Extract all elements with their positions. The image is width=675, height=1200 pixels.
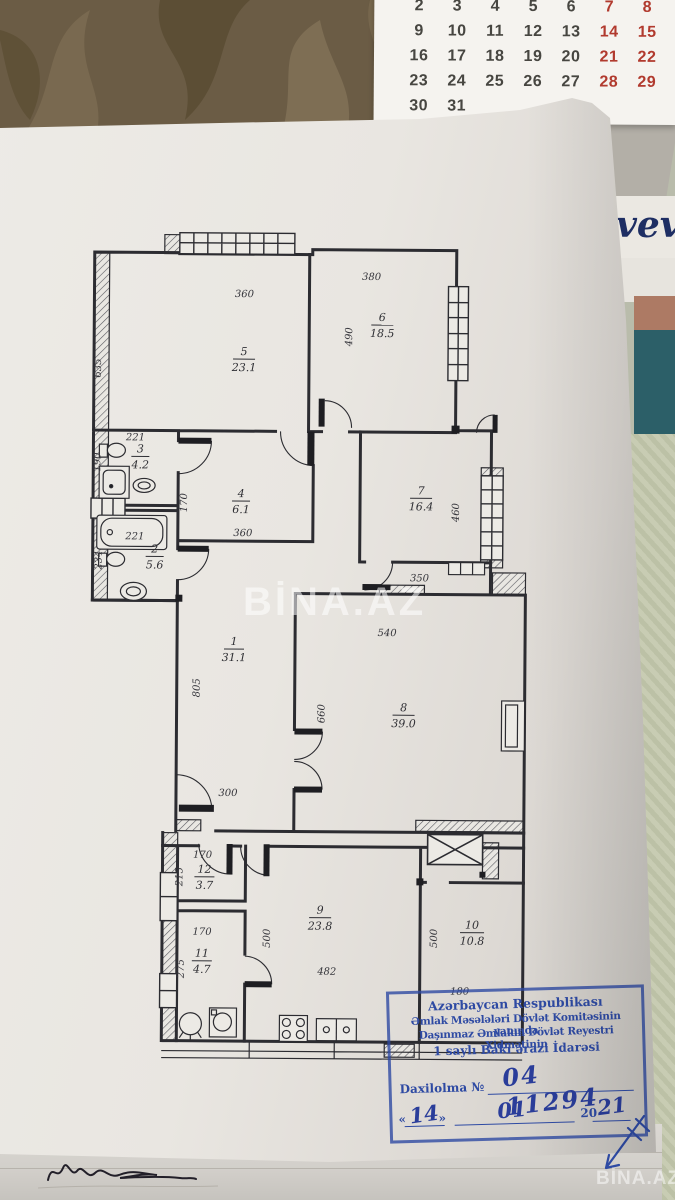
svg-text:9: 9	[317, 904, 324, 917]
calendar-day: 7	[590, 0, 628, 17]
calendar-day: 16	[400, 47, 438, 65]
calendar-day: 28	[590, 73, 628, 91]
stamp-day-line	[405, 1125, 445, 1127]
dim-label: 490	[344, 327, 355, 348]
calendar-day: 19	[514, 48, 552, 66]
curtain-pattern	[0, 0, 420, 140]
room-label: 523.1	[231, 345, 257, 374]
calendar-day: 24	[438, 72, 476, 90]
svg-text:3: 3	[137, 442, 144, 455]
dim-label: 221	[124, 531, 144, 542]
svg-text:18.5: 18.5	[370, 327, 395, 340]
stamp-day-handwritten: 14	[408, 1100, 440, 1129]
curtain-fabric	[0, 0, 420, 140]
dim-label: 170	[193, 850, 213, 861]
watermark-center: BİNA.AZ	[243, 580, 426, 625]
room-label: 123.7	[194, 863, 214, 892]
watermark-corner: BİNA.AZ	[596, 1168, 675, 1190]
svg-text:31.1: 31.1	[222, 651, 247, 664]
calendar-day: 18	[476, 48, 514, 66]
room-label: 618.5	[370, 311, 395, 340]
calendar-day: 8	[628, 0, 666, 17]
calendar-day: 25	[476, 73, 514, 91]
stamp-quote-close: »	[438, 1111, 446, 1125]
svg-text:1: 1	[231, 635, 238, 648]
floor-plan: 131.1 25.6 34.2 46.1 523.1 618.5 716.4 8…	[79, 220, 550, 1063]
box-logo-text: vev	[616, 204, 675, 246]
calendar-day: 30	[400, 97, 438, 115]
dim-label: 360	[233, 528, 253, 539]
dim-label: 221	[125, 432, 145, 443]
calendar-day: 31	[438, 97, 476, 115]
calendar-day: 6	[552, 0, 590, 16]
elevator-shaft	[428, 834, 483, 864]
handwritten-signature	[38, 1148, 218, 1196]
svg-text:10.8: 10.8	[460, 935, 485, 948]
room-label: 1010.8	[460, 919, 485, 948]
dim-label: 234	[94, 551, 105, 571]
calendar-day: 21	[590, 48, 628, 66]
dim-label: 380	[362, 272, 382, 283]
svg-text:39.0: 39.0	[391, 717, 416, 730]
svg-text:6: 6	[379, 311, 386, 324]
calendar-day: 14	[590, 23, 628, 41]
dim-label: 500	[429, 928, 440, 948]
svg-text:16.4: 16.4	[409, 500, 434, 513]
room-label: 131.1	[222, 635, 247, 664]
stamp-month-handwritten: 01	[496, 1096, 528, 1124]
background-strip-teal	[634, 330, 675, 438]
dim-label: 275	[176, 959, 187, 979]
svg-text:2: 2	[150, 542, 158, 555]
calendar-day: 26	[514, 73, 552, 91]
calendar-day: 9	[400, 22, 438, 40]
dim-label: 190	[92, 452, 103, 472]
dim-label: 660	[316, 703, 327, 723]
calendar-day: 11	[476, 23, 514, 41]
stamp-quote-open: «	[398, 1112, 406, 1126]
photo-of-floor-plan-document: vev 2 3 4 5 6 7 8 9 10 11 12 13 14 15 16…	[0, 0, 675, 1200]
svg-text:3.7: 3.7	[196, 879, 214, 892]
room-label: 114.7	[192, 947, 212, 976]
calendar-day: 23	[400, 72, 438, 90]
dim-label: 805	[192, 678, 203, 697]
svg-text:6.1: 6.1	[232, 503, 250, 516]
dim-label: 170	[179, 492, 190, 512]
background-strip-brown	[634, 296, 675, 334]
stamp-month-line	[455, 1121, 575, 1125]
dim-label: 215	[174, 867, 185, 887]
calendar-day: 29	[628, 74, 666, 92]
dim-label: 170	[192, 927, 212, 938]
calendar-day: 4	[476, 0, 514, 16]
svg-text:8: 8	[400, 701, 407, 714]
room-label: 716.4	[409, 484, 434, 513]
svg-text:7: 7	[418, 484, 425, 497]
calendar-day: 2	[400, 0, 438, 15]
calendar-day: 17	[438, 47, 476, 65]
room-label: 923.8	[307, 904, 333, 933]
door-arcs	[175, 400, 495, 986]
calendar-day: 10	[438, 22, 476, 40]
calendar-day: 5	[514, 0, 552, 16]
svg-text:5: 5	[241, 345, 248, 358]
dim-label: 635	[93, 359, 104, 378]
svg-text:23.8: 23.8	[307, 920, 333, 933]
dim-label: 500	[262, 928, 273, 948]
svg-text:11: 11	[195, 947, 209, 960]
dim-label: 360	[235, 289, 255, 300]
svg-text:4: 4	[237, 487, 245, 500]
calendar-day: 12	[514, 23, 552, 41]
calendar-grid: 2 3 4 5 6 7 8 9 10 11 12 13 14 15 16 17 …	[374, 0, 675, 117]
calendar-day: 15	[628, 24, 666, 42]
dim-label: 300	[218, 788, 238, 799]
calendar-day: 27	[552, 73, 590, 91]
room-label: 839.0	[391, 701, 416, 730]
desk-calendar: 2 3 4 5 6 7 8 9 10 11 12 13 14 15 16 17 …	[374, 0, 675, 125]
svg-text:23.1: 23.1	[231, 361, 257, 374]
bathroom-kitchen-fixtures	[93, 443, 526, 1044]
dim-label: 482	[316, 967, 336, 978]
calendar-day: 3	[438, 0, 476, 16]
calendar-day: 20	[552, 48, 590, 66]
room-label: 46.1	[232, 487, 250, 516]
calendar-day: 22	[628, 49, 666, 67]
svg-text:12: 12	[197, 863, 211, 876]
room-label: 34.2	[130, 442, 149, 471]
dim-label: 540	[378, 628, 398, 639]
svg-text:4.2: 4.2	[130, 458, 149, 471]
dim-label: 460	[451, 502, 462, 523]
svg-text:10: 10	[465, 919, 479, 932]
svg-text:5.6: 5.6	[146, 558, 164, 571]
stamp-entry-label: Daxilolma №	[399, 1080, 484, 1096]
svg-text:4.7: 4.7	[192, 963, 211, 976]
dimension-labels: 360 635 380 490 221 190 170 360 221 234 …	[89, 270, 475, 998]
calendar-day: 13	[552, 23, 590, 41]
